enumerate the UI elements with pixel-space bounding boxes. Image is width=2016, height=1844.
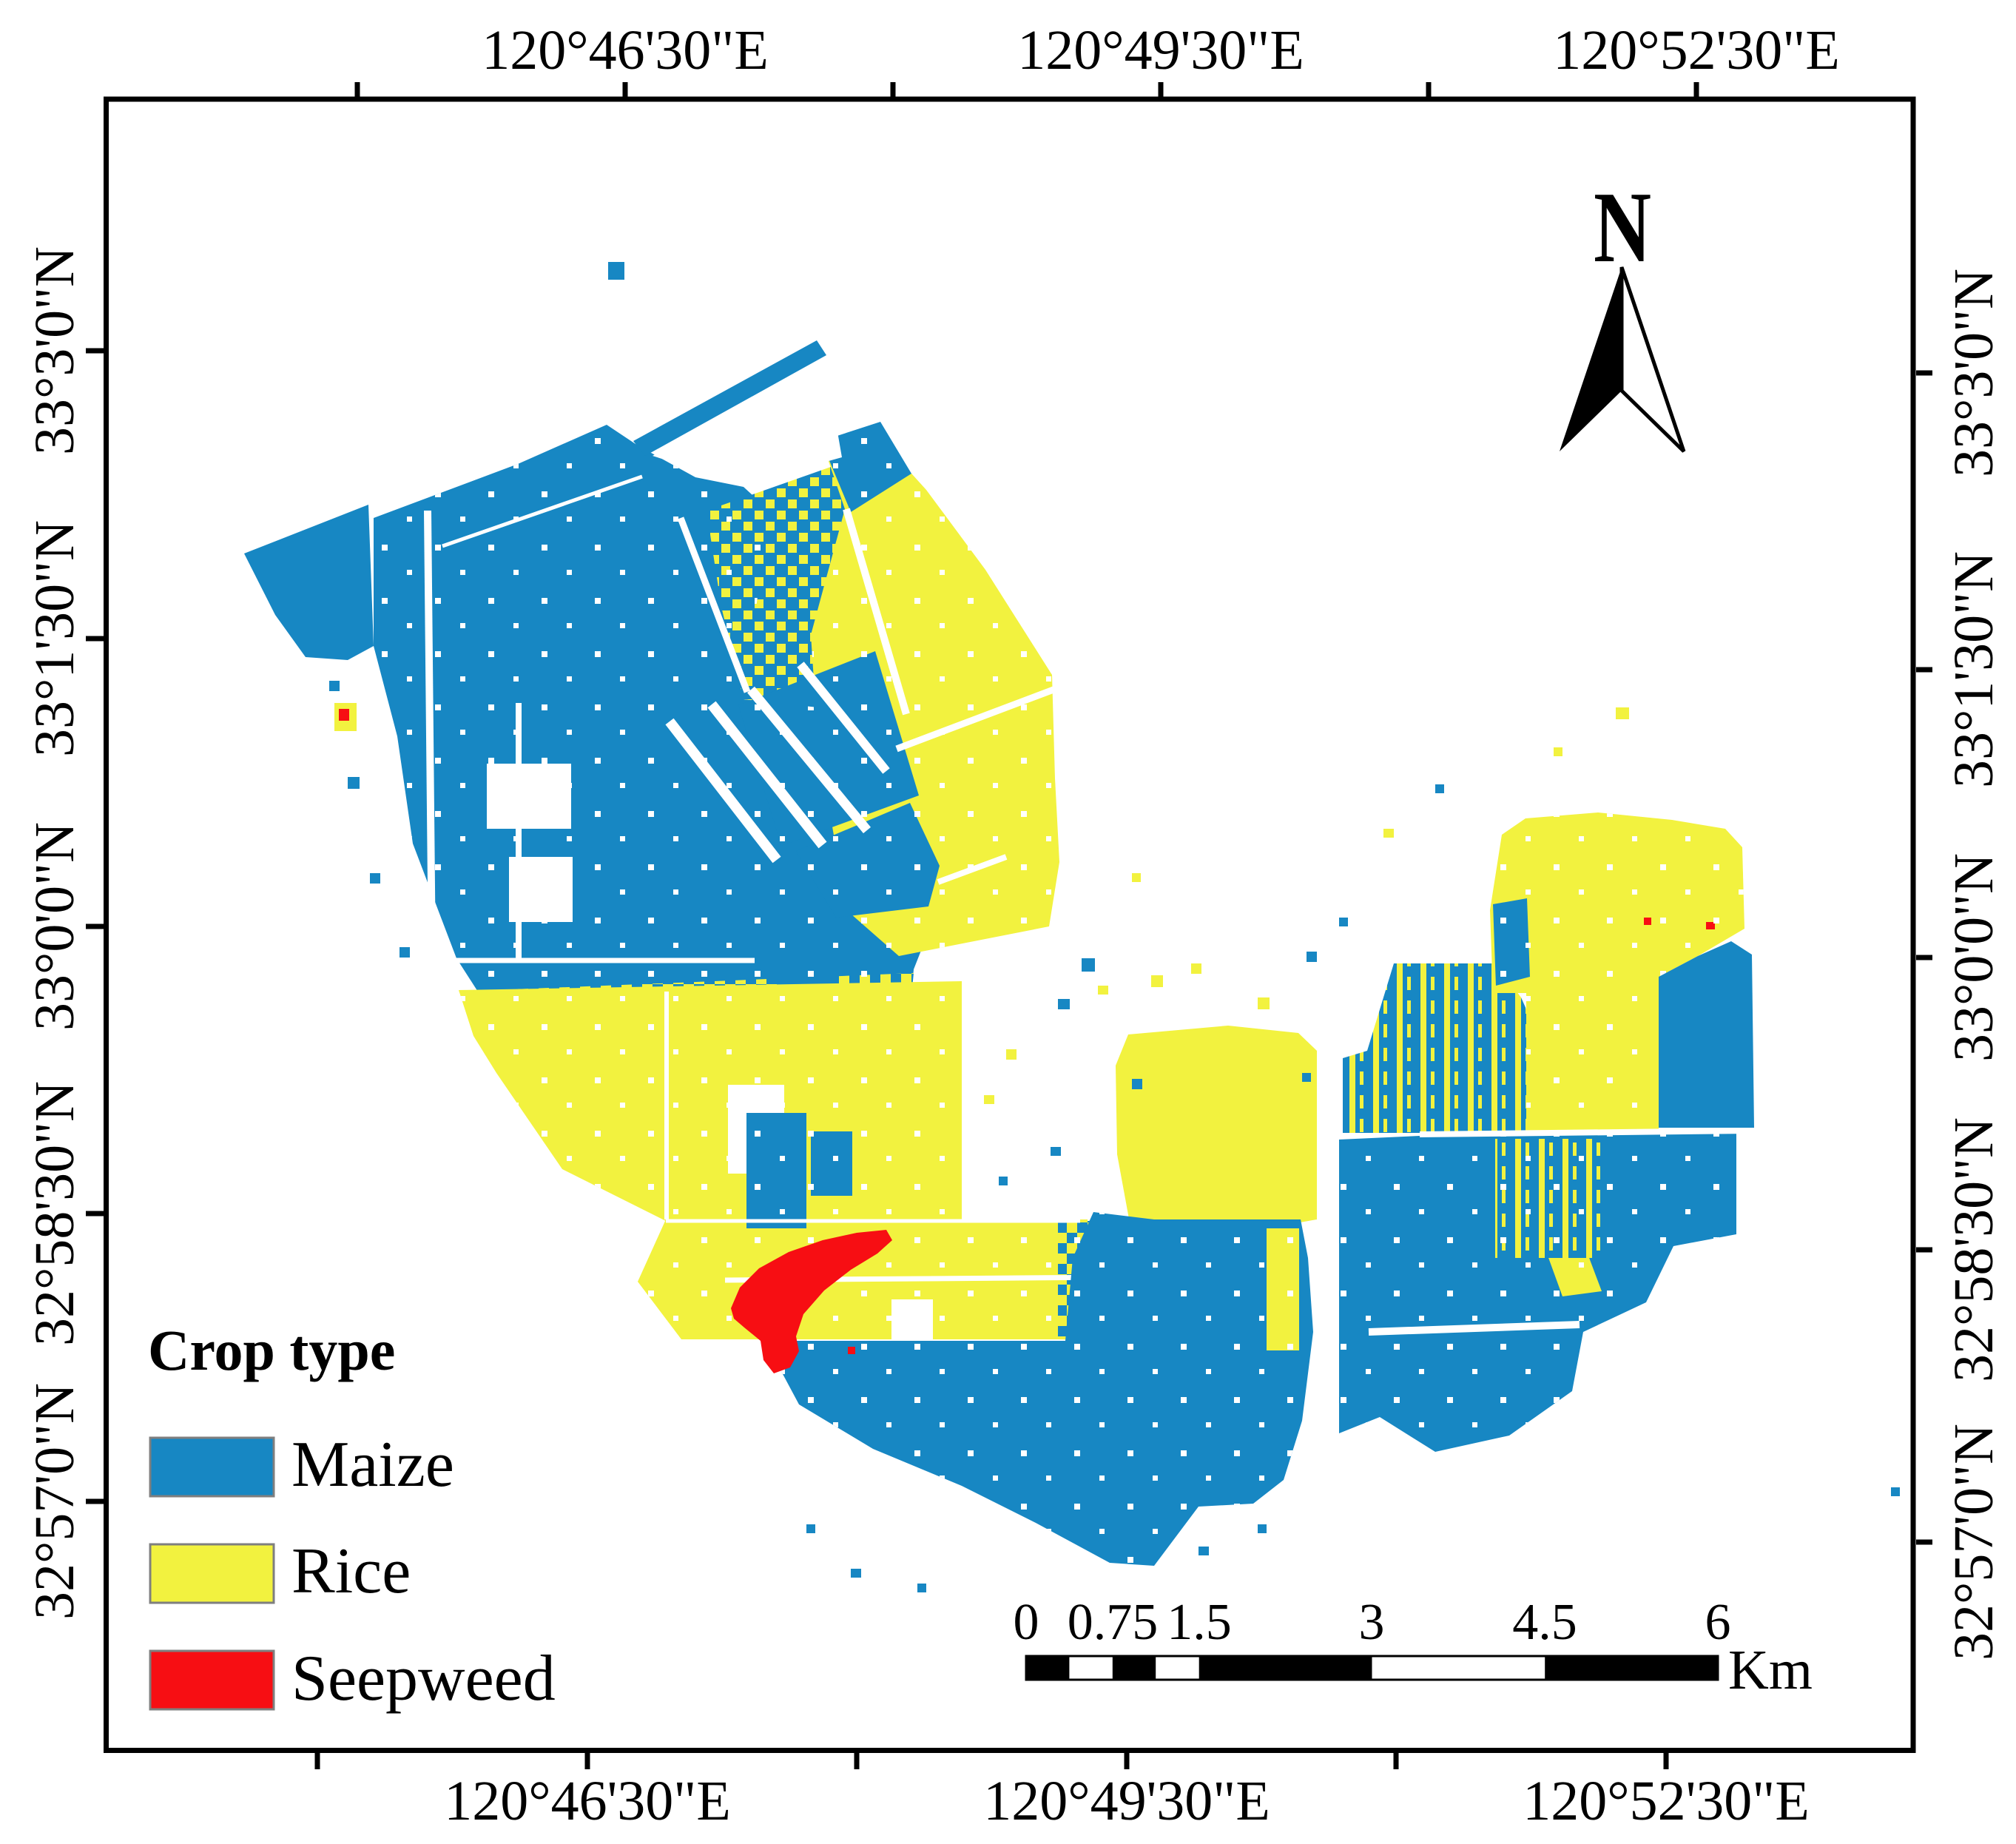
svg-text:N: N — [1594, 171, 1651, 283]
svg-text:120°46'30"E: 120°46'30"E — [482, 19, 769, 81]
svg-text:3: 3 — [1359, 1594, 1385, 1651]
svg-text:6: 6 — [1705, 1594, 1731, 1651]
svg-text:33°0'0"N: 33°0'0"N — [1943, 853, 2005, 1062]
svg-text:33°3'0"N: 33°3'0"N — [1943, 269, 2005, 477]
svg-text:32°57'0"N: 32°57'0"N — [1943, 1424, 2005, 1660]
svg-text:Rice: Rice — [291, 1535, 411, 1607]
svg-text:120°49'30"E: 120°49'30"E — [983, 1770, 1270, 1832]
svg-text:Maize: Maize — [291, 1429, 454, 1501]
svg-text:0.75: 0.75 — [1068, 1594, 1159, 1651]
svg-text:4.5: 4.5 — [1512, 1594, 1577, 1651]
svg-text:120°49'30"E: 120°49'30"E — [1017, 19, 1304, 81]
svg-text:33°1'30"N: 33°1'30"N — [1943, 551, 2005, 788]
svg-text:32°58'30"N: 32°58'30"N — [1943, 1117, 2005, 1382]
svg-text:1.5: 1.5 — [1167, 1594, 1232, 1651]
svg-text:120°52'30"E: 120°52'30"E — [1523, 1770, 1810, 1832]
svg-text:0: 0 — [1014, 1594, 1039, 1651]
svg-text:33°3'0"N: 33°3'0"N — [24, 246, 86, 455]
svg-text:Seepweed: Seepweed — [291, 1643, 556, 1715]
svg-text:120°46'30"E: 120°46'30"E — [444, 1770, 731, 1832]
svg-text:33°1'30"N: 33°1'30"N — [24, 520, 86, 757]
svg-text:32°58'30"N: 32°58'30"N — [24, 1081, 86, 1346]
svg-text:Crop type: Crop type — [148, 1318, 395, 1382]
svg-text:33°0'0"N: 33°0'0"N — [24, 822, 86, 1031]
svg-text:32°57'0"N: 32°57'0"N — [24, 1383, 86, 1620]
svg-text:Km: Km — [1728, 1639, 1813, 1701]
svg-text:120°52'30"E: 120°52'30"E — [1553, 19, 1840, 81]
